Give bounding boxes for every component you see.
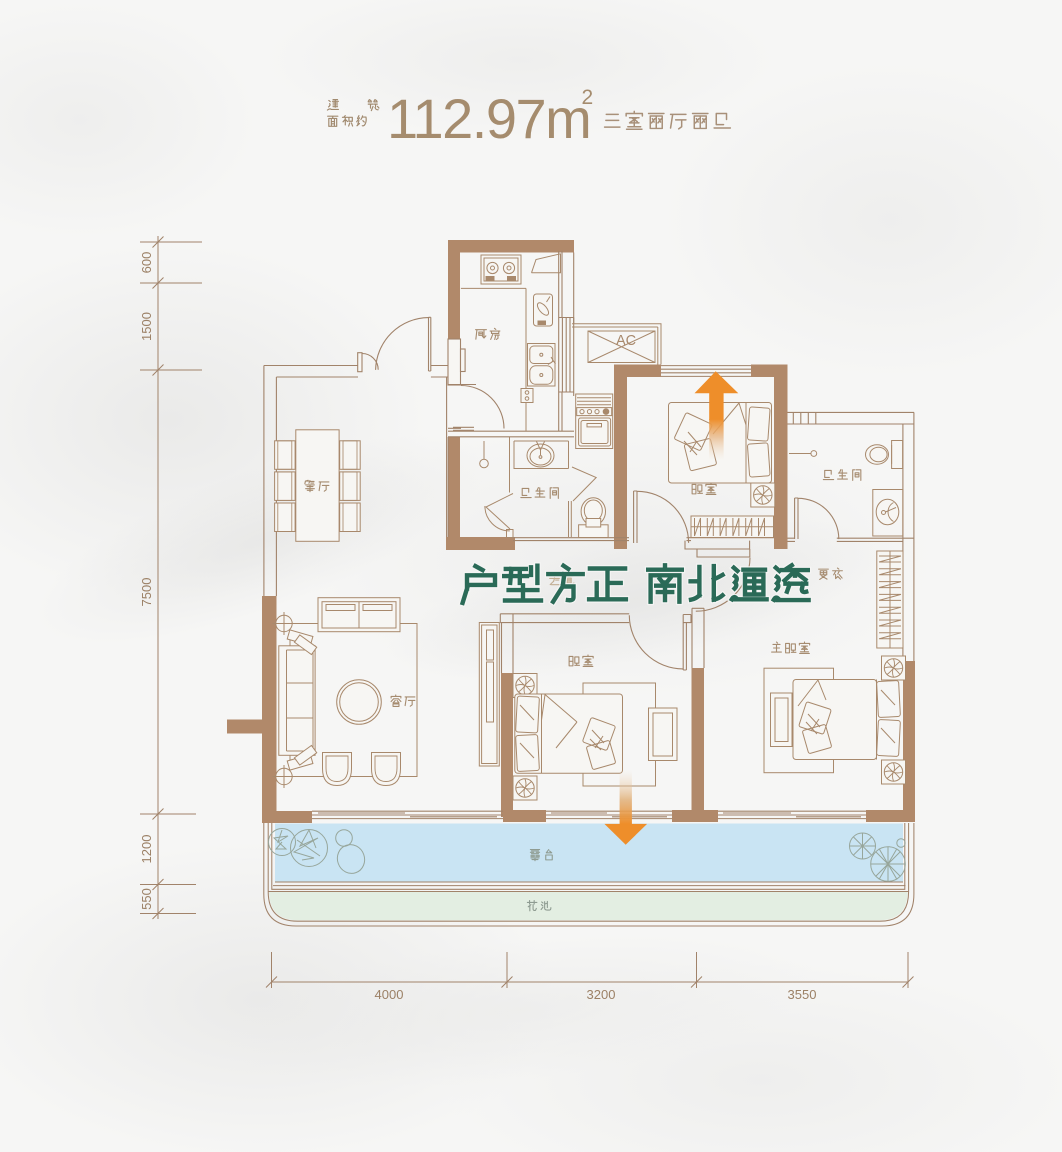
svg-text:AC: AC [616,333,636,349]
svg-text:3200: 3200 [587,987,616,1002]
svg-text:7500: 7500 [139,578,154,607]
svg-text:600: 600 [139,252,154,274]
svg-text:550: 550 [139,888,154,910]
svg-text:112.97m: 112.97m [387,87,590,150]
svg-text:3550: 3550 [788,987,817,1002]
svg-text:1500: 1500 [139,312,154,341]
svg-text:2: 2 [582,86,594,109]
svg-text:4000: 4000 [375,987,404,1002]
svg-text:1200: 1200 [139,835,154,864]
